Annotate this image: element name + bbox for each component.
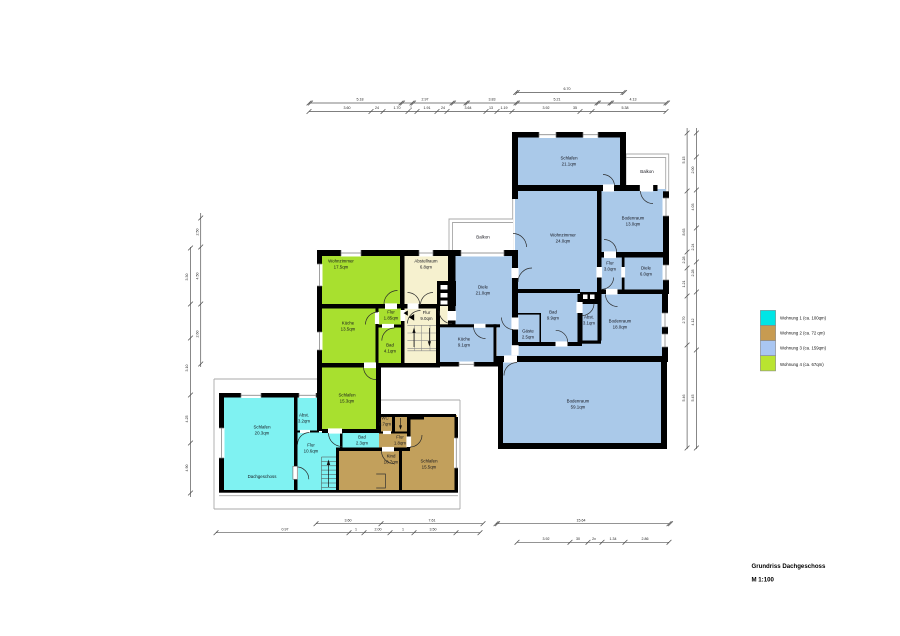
svg-text:Bad: Bad (358, 435, 366, 440)
svg-text:Wohnzimmer: Wohnzimmer (550, 233, 576, 238)
svg-text:3.2qm: 3.2qm (298, 419, 311, 424)
svg-text:2.24: 2.24 (691, 244, 695, 251)
svg-text:Flur: Flur (396, 435, 404, 440)
svg-text:Diele: Diele (478, 285, 489, 290)
svg-text:Schlafen: Schlafen (420, 459, 438, 464)
svg-text:3.10: 3.10 (185, 365, 189, 372)
svg-text:9.0qm: 9.0qm (420, 316, 433, 321)
svg-text:Diele: Diele (641, 266, 652, 271)
svg-text:3.92: 3.92 (543, 106, 550, 110)
svg-text:15.3qm: 15.3qm (340, 399, 355, 404)
svg-text:2.60: 2.60 (195, 331, 199, 338)
svg-text:5.38: 5.38 (622, 106, 629, 110)
svg-text:4.50: 4.50 (195, 273, 199, 280)
svg-text:5.46: 5.46 (682, 395, 686, 402)
svg-text:6.8qm: 6.8qm (420, 265, 433, 270)
svg-text:24.0qm: 24.0qm (556, 239, 571, 244)
svg-text:4.12: 4.12 (691, 319, 695, 326)
svg-text:9.1qm: 9.1qm (458, 343, 471, 348)
svg-text:1.19: 1.19 (501, 106, 508, 110)
svg-text:2.00: 2.00 (375, 528, 382, 532)
svg-text:4.03: 4.03 (691, 204, 695, 211)
svg-text:Schlafen: Schlafen (560, 156, 578, 161)
svg-text:3.83: 3.83 (489, 98, 496, 102)
svg-text:Dachgeschoss: Dachgeschoss (248, 474, 278, 479)
svg-text:5.21: 5.21 (554, 98, 561, 102)
svg-text:3.1qm: 3.1qm (583, 321, 596, 326)
svg-text:4.90: 4.90 (185, 465, 189, 472)
svg-text:Flur: Flur (423, 310, 431, 315)
svg-text:30: 30 (576, 537, 580, 541)
svg-text:Wohnzimmer: Wohnzimmer (328, 259, 354, 264)
svg-text:1: 1 (355, 528, 357, 532)
svg-text:2x: 2x (592, 537, 596, 541)
svg-text:6.70: 6.70 (564, 87, 571, 91)
svg-text:15.5qm: 15.5qm (422, 465, 437, 470)
svg-text:Küche: Küche (342, 321, 355, 326)
svg-text:Flur: Flur (307, 443, 315, 448)
svg-text:Grundriss Dachgeschoss: Grundriss Dachgeschoss (752, 563, 826, 570)
svg-text:Balkon: Balkon (476, 235, 490, 240)
svg-text:2.97: 2.97 (422, 98, 429, 102)
svg-text:2.28: 2.28 (691, 270, 695, 277)
svg-text:Abst.: Abst. (584, 315, 594, 320)
svg-text:3.64: 3.64 (465, 106, 472, 110)
svg-text:5.15: 5.15 (682, 157, 686, 164)
svg-text:M 1:100: M 1:100 (752, 577, 775, 584)
svg-text:WC: WC (381, 416, 388, 421)
svg-text:Abstellraum: Abstellraum (414, 259, 438, 264)
svg-text:Wohnung 1 (ca. 100qm): Wohnung 1 (ca. 100qm) (780, 316, 827, 321)
svg-text:Bad: Bad (549, 310, 557, 315)
svg-text:2.70: 2.70 (682, 317, 686, 324)
svg-text:Flur: Flur (387, 310, 395, 315)
svg-text:4.1qm: 4.1qm (384, 349, 397, 354)
svg-text:2.50: 2.50 (195, 229, 199, 236)
svg-text:Schlafen: Schlafen (338, 393, 356, 398)
svg-text:Wohnung 3 (ca. 159qm): Wohnung 3 (ca. 159qm) (780, 345, 827, 350)
svg-text:2.28: 2.28 (682, 257, 686, 264)
svg-text:1: 1 (410, 106, 412, 110)
svg-text:3.60: 3.60 (344, 106, 351, 110)
svg-text:2.5qm: 2.5qm (522, 335, 535, 340)
svg-text:17.5qm: 17.5qm (334, 265, 349, 270)
svg-text:20.3qm: 20.3qm (255, 431, 270, 436)
svg-text:Wohnung 2 (ca. 72 qm): Wohnung 2 (ca. 72 qm) (780, 331, 825, 336)
svg-text:10.7qm: 10.7qm (384, 460, 399, 465)
svg-text:13: 13 (489, 106, 493, 110)
svg-text:1.85qm: 1.85qm (384, 316, 399, 321)
svg-text:3.30: 3.30 (185, 274, 189, 281)
svg-text:15.64: 15.64 (577, 519, 586, 523)
svg-text:13.0qm: 13.0qm (626, 222, 641, 227)
svg-text:2.3qm: 2.3qm (356, 441, 369, 446)
svg-text:Kind: Kind (387, 454, 396, 459)
svg-text:6.0qm: 6.0qm (640, 272, 653, 277)
svg-text:18.0qm: 18.0qm (613, 325, 628, 330)
svg-text:21.1qm: 21.1qm (562, 162, 577, 167)
svg-text:1.34: 1.34 (610, 537, 617, 541)
svg-text:Balkon: Balkon (640, 169, 654, 174)
svg-text:5.45: 5.45 (691, 395, 695, 402)
svg-text:2.86: 2.86 (642, 537, 649, 541)
svg-text:3.50: 3.50 (430, 528, 437, 532)
svg-text:1.21: 1.21 (682, 281, 686, 288)
svg-text:Schlafen: Schlafen (253, 425, 271, 430)
svg-text:0.7qm: 0.7qm (379, 422, 392, 427)
svg-text:7.61: 7.61 (429, 519, 436, 523)
svg-text:3.60: 3.60 (345, 519, 352, 523)
svg-text:8.63: 8.63 (682, 229, 686, 236)
svg-text:9.9qm: 9.9qm (547, 316, 560, 321)
svg-text:Abst.: Abst. (299, 413, 309, 418)
svg-text:24: 24 (441, 106, 445, 110)
svg-text:4.25: 4.25 (185, 416, 189, 423)
svg-text:21.0qm: 21.0qm (476, 291, 491, 296)
svg-text:1.8qm: 1.8qm (394, 441, 407, 446)
svg-text:5.18: 5.18 (357, 98, 364, 102)
svg-text:Bad: Bad (386, 343, 394, 348)
svg-text:Flur: Flur (606, 261, 614, 266)
svg-text:Bodenraum: Bodenraum (567, 399, 590, 404)
svg-text:59.1qm: 59.1qm (571, 405, 586, 410)
svg-text:0.97: 0.97 (282, 528, 289, 532)
svg-text:24: 24 (375, 106, 379, 110)
svg-text:2.00: 2.00 (691, 167, 695, 174)
svg-text:3.0qm: 3.0qm (604, 267, 617, 272)
svg-text:1.91: 1.91 (424, 106, 431, 110)
svg-text:Wohnung 4 (ca. 67qm): Wohnung 4 (ca. 67qm) (780, 362, 824, 367)
svg-text:Gäste: Gäste (522, 329, 534, 334)
svg-text:Bodenraum: Bodenraum (609, 319, 632, 324)
svg-text:13.5qm: 13.5qm (341, 327, 356, 332)
svg-text:35: 35 (573, 106, 577, 110)
svg-text:Bodenraum: Bodenraum (622, 216, 645, 221)
svg-text:10.6qm: 10.6qm (304, 449, 319, 454)
svg-text:1.70: 1.70 (394, 106, 401, 110)
svg-text:1: 1 (402, 528, 404, 532)
svg-text:4.13: 4.13 (630, 98, 637, 102)
svg-text:3.92: 3.92 (543, 537, 550, 541)
svg-text:Küche: Küche (458, 337, 471, 342)
